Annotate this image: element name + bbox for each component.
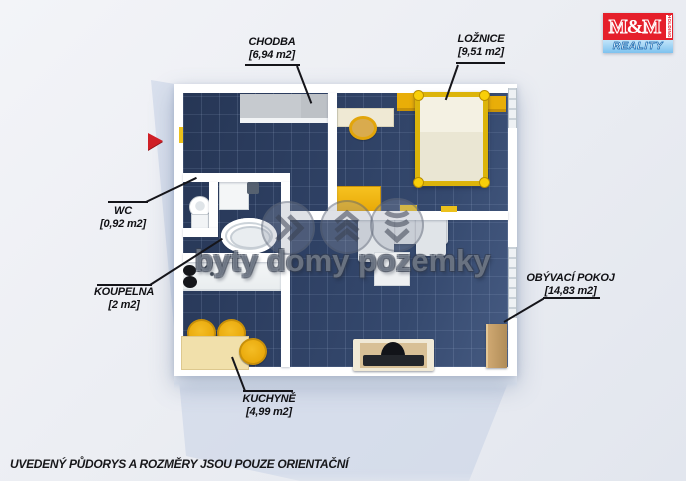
bathroom-sink <box>247 182 259 194</box>
bed-post <box>413 90 424 101</box>
double-bed <box>415 92 488 186</box>
nightstand-right <box>487 96 506 112</box>
room-label-loznice: LOŽNICE [9,51 m2] <box>425 33 537 59</box>
room-label-wc: WC [0,92 m2] <box>78 205 168 231</box>
room-area: [6,94 m2] <box>212 49 332 62</box>
logo-ampersand: & <box>627 16 643 38</box>
logo-reality-text: REALITY <box>603 40 673 53</box>
sofa-chaise-right <box>416 214 446 256</box>
room-area: [4,99 m2] <box>224 406 314 419</box>
bed-post <box>413 177 424 188</box>
mm-reality-logo: M&M HOLDING REALITY <box>603 13 673 53</box>
leader-line-obyvaci <box>543 297 600 299</box>
room-label-kuchyne: KUCHYNĚ [4,99 m2] <box>224 393 314 419</box>
room-label-chodba: CHODBA [6,94 m2] <box>212 36 332 62</box>
room-label-obyvaci-pokoj: OBÝVACÍ POKOJ [14,83 m2] <box>513 272 628 298</box>
washing-machine <box>219 181 249 210</box>
room-label-koupelna: KOUPELNA [2 m2] <box>79 286 169 312</box>
room-name: KUCHYNĚ <box>224 393 314 406</box>
leader-line-loznice <box>456 62 505 64</box>
leader-line-koupelna <box>97 284 152 286</box>
wall-wc-bottom <box>183 228 218 237</box>
room-name: KOUPELNA <box>79 286 169 299</box>
hallway-radiator <box>179 127 183 143</box>
room-name: LOŽNICE <box>425 33 537 46</box>
bed-post <box>479 90 490 101</box>
plan-base-highlight <box>174 375 517 389</box>
bathtub <box>221 218 277 254</box>
room-name: OBÝVACÍ POKOJ <box>513 272 628 285</box>
leader-line-chodba <box>245 64 300 66</box>
wall-bedroom-living <box>283 211 508 220</box>
bed-post <box>479 177 490 188</box>
room-name: WC <box>78 205 168 218</box>
wall-hall-bedroom <box>328 93 337 220</box>
tv-base <box>363 355 424 366</box>
stove-burner <box>183 276 197 288</box>
logo-mm-text: M&M <box>603 14 666 40</box>
wall-hall-bath <box>183 173 290 182</box>
bed-pillow-area <box>420 97 483 132</box>
kitchen-counter <box>183 262 281 291</box>
living-room-cabinet <box>486 324 507 368</box>
entrance-arrow-icon <box>148 133 163 150</box>
wall-bath-living <box>281 182 290 367</box>
room-area: [0,92 m2] <box>78 218 168 231</box>
disclaimer-text: UVEDENÝ PŮDORYS A ROZMĚRY JSOU POUZE ORI… <box>10 457 348 471</box>
logo-holding-text: HOLDING <box>666 15 672 38</box>
hallway-wardrobe <box>240 94 329 123</box>
bedroom-radiator <box>441 206 457 212</box>
room-area: [9,51 m2] <box>425 46 537 59</box>
tv-stand <box>353 339 434 371</box>
bathtub-basin <box>230 226 271 249</box>
kitchen-chair <box>239 338 267 365</box>
bedroom-desk-chair <box>349 116 377 140</box>
leader-line-wc <box>108 201 148 203</box>
room-area: [2 m2] <box>79 299 169 312</box>
leader-line-kuchyne <box>243 390 293 392</box>
stove-burner <box>183 265 196 276</box>
bedroom-window <box>508 88 517 128</box>
bedroom-radiator <box>400 205 417 211</box>
bedroom-side-table <box>334 186 381 213</box>
room-name: CHODBA <box>212 36 332 49</box>
floorplan-canvas: byty domy pozemky CHODBA [6,94 m2] LOŽNI… <box>0 0 686 481</box>
coffee-table <box>374 252 410 286</box>
